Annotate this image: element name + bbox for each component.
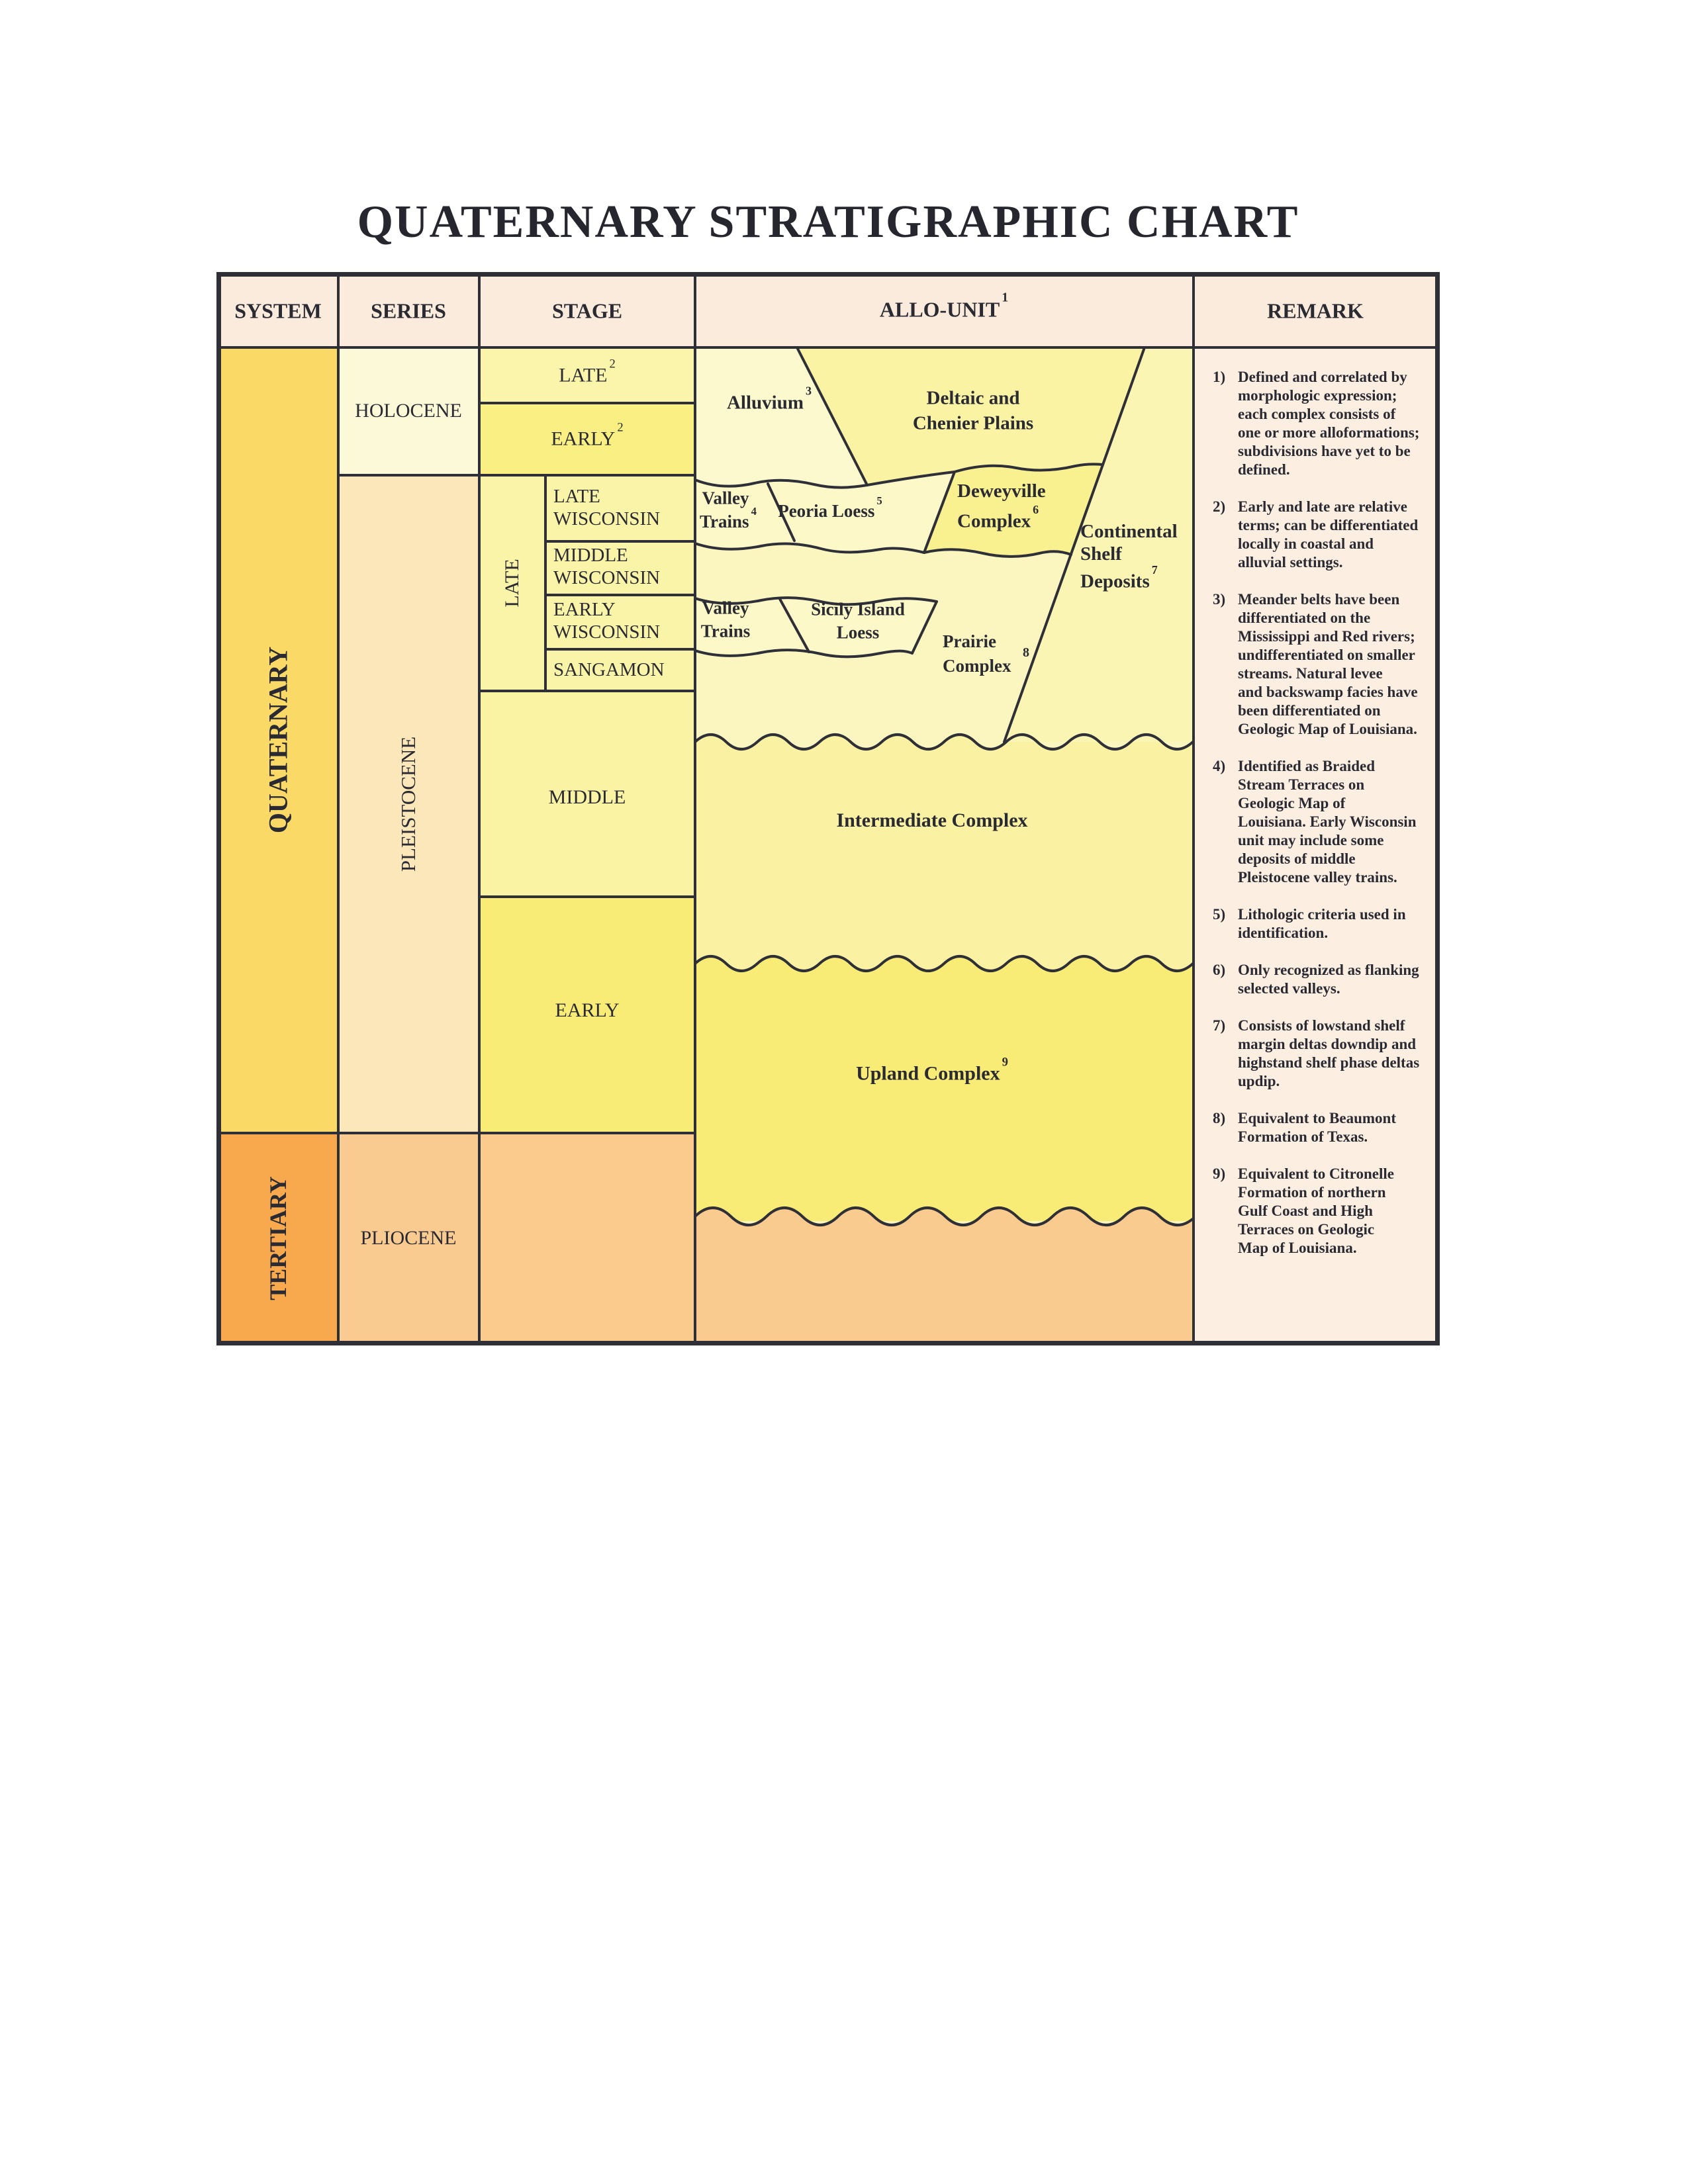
table-border-left [216, 272, 221, 1345]
stage-late-holocene-sup: 2 [610, 357, 616, 371]
allo-alluvium-sup: 3 [806, 385, 812, 398]
remark-line: differentiated on the [1213, 609, 1435, 627]
allo-upland-region [695, 956, 1194, 1221]
remark-line: been differentiated on [1213, 702, 1435, 720]
remark-line: morphologic expression; [1213, 387, 1435, 405]
stage-middle-wisconsin: MIDDLE WISCONSIN [553, 544, 660, 589]
system-quaternary-label: QUATERNARY [263, 647, 294, 833]
remark-line: Geologic Map of [1213, 794, 1435, 813]
remark-line: subdivisions have yet to be [1213, 442, 1435, 461]
allo-valley-trains-late-text: Trains [700, 512, 749, 531]
remark-line: terms; can be differentiated [1213, 516, 1435, 535]
table-border-bottom [216, 1341, 1440, 1345]
header-allo-unit-text: ALLO-UNIT [880, 298, 1000, 322]
allo-peoria-loess-label: Peoria Loess5 [778, 500, 882, 522]
allo-peoria-loess-text: Peoria Loess [778, 501, 874, 521]
remark-line: 7)Consists of lowstand shelf [1213, 1017, 1435, 1035]
allo-deweyville-line2-text: Complex [957, 511, 1031, 532]
header-allo-unit: ALLO-UNIT1 [880, 298, 1008, 322]
remark-line: selected valleys. [1213, 979, 1435, 998]
page: QUATERNARY STRATIGRAPHIC CHART [0, 0, 1688, 2184]
remark-line: 1)Defined and correlated by [1213, 368, 1435, 387]
stage-late-holocene: LATE2 [559, 364, 616, 387]
allo-pliocene-region [695, 1208, 1194, 1343]
table-border-right [1435, 272, 1440, 1345]
stage-early: EARLY [555, 999, 620, 1022]
stage-early-wisconsin-line1: EARLY [553, 598, 660, 621]
remark-text: Consists of lowstand shelf [1238, 1017, 1405, 1034]
remark-line: streams. Natural levee [1213, 664, 1435, 683]
grid-line [338, 474, 695, 477]
stage-late-holocene-text: LATE [559, 365, 607, 387]
grid-line [479, 895, 695, 898]
remark-line: Stream Terraces on [1213, 776, 1435, 794]
grid-line [218, 1132, 695, 1134]
remark-item-1: 1)Defined and correlated by morphologic … [1213, 368, 1435, 479]
allo-intermediate-region [695, 735, 1194, 970]
remark-line: one or more alloformations; [1213, 424, 1435, 442]
allo-valley-trains-early-line1: Valley [702, 598, 749, 619]
remark-line: deposits of middle [1213, 850, 1435, 868]
allo-prairie-sup: 8 [1023, 645, 1029, 660]
remark-line: Formation of northern [1213, 1183, 1435, 1202]
stage-early-holocene-text: EARLY [551, 428, 615, 450]
system-tertiary-label: TERTIARY [264, 1176, 292, 1300]
allo-sicily-island-line1: Sicily Island [811, 600, 905, 620]
allo-continental-line3-text: Deposits [1080, 571, 1150, 592]
remark-line: 6)Only recognized as flanking [1213, 961, 1435, 979]
remark-item-8: 8)Equivalent to Beaumont Formation of Te… [1213, 1109, 1435, 1146]
remark-line: Terraces on Geologic [1213, 1220, 1435, 1239]
header-allo-unit-sup: 1 [1002, 291, 1008, 305]
remark-item-4: 4)Identified as Braided Stream Terraces … [1213, 757, 1435, 887]
grid-line [544, 475, 547, 691]
remark-line: each complex consists of [1213, 405, 1435, 424]
stage-middle: MIDDLE [549, 786, 626, 809]
allo-deweyville-line2: Complex6 [957, 504, 1046, 534]
remark-text: Only recognized as flanking [1238, 962, 1419, 978]
remark-num: 2) [1213, 498, 1238, 516]
stage-middle-wisconsin-line1: MIDDLE [553, 544, 660, 567]
cell-pliocene-stage [479, 1133, 695, 1343]
allo-alluvium-text: Alluvium [727, 392, 804, 413]
remark-text: Meander belts have been [1238, 591, 1399, 608]
allo-prairie-line2: Complex [943, 654, 1011, 678]
stage-early-holocene-sup: 2 [617, 420, 623, 434]
allo-deltaic-line2: Chenier Plains [913, 413, 1033, 435]
allo-alluvium-label: Alluvium3 [727, 391, 812, 414]
allo-continental-sup: 7 [1152, 563, 1158, 576]
remark-item-5: 5)Lithologic criteria used in identifica… [1213, 905, 1435, 942]
remark-num: 1) [1213, 368, 1238, 387]
header-remark: REMARK [1267, 299, 1364, 324]
stage-middle-wisconsin-line2: WISCONSIN [553, 567, 660, 589]
remark-line: Mississippi and Red rivers; [1213, 627, 1435, 646]
remark-num: 9) [1213, 1165, 1238, 1183]
remark-line: 5)Lithologic criteria used in [1213, 905, 1435, 924]
remark-num: 4) [1213, 757, 1238, 776]
remark-line: Geologic Map of Louisiana. [1213, 720, 1435, 739]
remark-line: Map of Louisiana. [1213, 1239, 1435, 1257]
stage-late-wisconsin-line2: WISCONSIN [553, 508, 660, 530]
allo-valley-trains-late-line1: Valley [702, 488, 749, 509]
remark-text: Equivalent to Beaumont [1238, 1110, 1396, 1126]
grid-line [479, 402, 695, 404]
remark-line: defined. [1213, 461, 1435, 479]
remark-line: identification. [1213, 924, 1435, 942]
remark-line: and backswamp facies have [1213, 683, 1435, 702]
grid-line [478, 275, 481, 1343]
remark-line: alluvial settings. [1213, 553, 1435, 572]
table-border-top [216, 272, 1440, 277]
grid-line [479, 690, 695, 692]
stage-early-holocene: EARLY2 [551, 428, 623, 451]
header-system: SYSTEM [234, 299, 322, 324]
remark-line: 9)Equivalent to Citronelle [1213, 1165, 1435, 1183]
allo-intermediate-label: Intermediate Complex [836, 809, 1027, 832]
remark-line: Gulf Coast and High [1213, 1202, 1435, 1220]
remark-text: Identified as Braided [1238, 758, 1375, 774]
stage-sangamon: SANGAMON [553, 659, 665, 681]
remark-line: margin deltas downdip and [1213, 1035, 1435, 1054]
grid-line [545, 648, 695, 651]
remark-text: Equivalent to Citronelle [1238, 1165, 1394, 1182]
stage-early-wisconsin: EARLY WISCONSIN [553, 598, 660, 643]
remark-line: 2)Early and late are relative [1213, 498, 1435, 516]
grid-line [337, 275, 340, 1343]
header-stage: STAGE [552, 299, 622, 324]
allo-valley-trains-late-sup: 4 [751, 505, 757, 518]
remark-num: 8) [1213, 1109, 1238, 1128]
remark-item-6: 6)Only recognized as flanking selected v… [1213, 961, 1435, 998]
grid-line [1192, 275, 1195, 1343]
grid-line [545, 540, 695, 543]
allo-continental-line2: Shelf [1080, 543, 1178, 565]
allo-upland-label: Upland Complex9 [856, 1062, 1008, 1085]
remark-line: Pleistocene valley trains. [1213, 868, 1435, 887]
remark-line: highstand shelf phase deltas [1213, 1054, 1435, 1072]
allo-prairie-label: Prairie Complex [943, 629, 1011, 678]
remark-line: 8)Equivalent to Beaumont [1213, 1109, 1435, 1128]
remark-num: 7) [1213, 1017, 1238, 1035]
allo-upland-sup: 9 [1002, 1055, 1008, 1069]
page-title: QUATERNARY STRATIGRAPHIC CHART [218, 196, 1438, 249]
grid-line [545, 594, 695, 596]
allo-prairie-line1: Prairie [943, 629, 1011, 654]
allo-deweyville-sup: 6 [1033, 503, 1039, 516]
remark-item-3: 3)Meander belts have been differentiated… [1213, 590, 1435, 739]
allo-deltaic-line1: Deltaic and [927, 388, 1020, 410]
series-holocene-label: HOLOCENE [355, 400, 462, 422]
remark-num: 5) [1213, 905, 1238, 924]
allo-unit-diagram [695, 347, 1194, 1343]
allo-valley-trains-early-line2: Trains [701, 621, 751, 642]
remark-item-2: 2)Early and late are relative terms; can… [1213, 498, 1435, 572]
remark-text: Lithologic criteria used in [1238, 906, 1406, 923]
stage-late-wisconsin-line1: LATE [553, 485, 660, 508]
remark-line: 4)Identified as Braided [1213, 757, 1435, 776]
stage-late-wisconsin: LATE WISCONSIN [553, 485, 660, 530]
allo-upland-text: Upland Complex [856, 1063, 1000, 1085]
allo-deweyville-label: Deweyville Complex6 [957, 478, 1046, 534]
remark-line: Formation of Texas. [1213, 1128, 1435, 1146]
series-pleistocene-label: PLEISTOCENE [397, 737, 420, 872]
header-series: SERIES [371, 299, 446, 324]
remark-line: 3)Meander belts have been [1213, 590, 1435, 609]
allo-continental-line3: Deposits7 [1080, 565, 1178, 593]
allo-deweyville-line1: Deweyville [957, 478, 1046, 504]
remark-list: 1)Defined and correlated by morphologic … [1213, 368, 1435, 1276]
stage-early-wisconsin-line2: WISCONSIN [553, 621, 660, 643]
grid-line [694, 275, 696, 1343]
allo-peoria-loess-sup: 5 [876, 494, 882, 507]
remark-text: Early and late are relative [1238, 498, 1407, 515]
remark-line: updip. [1213, 1072, 1435, 1091]
remark-line: unit may include some [1213, 831, 1435, 850]
series-pliocene-label: PLIOCENE [361, 1227, 457, 1250]
allo-continental-shelf-label: Continental Shelf Deposits7 [1080, 520, 1178, 593]
allo-sicily-island-line2: Loess [837, 623, 880, 643]
stage-late-group-label: LATE [501, 559, 524, 607]
allo-valley-trains-late-line2: Trains4 [700, 511, 757, 532]
remark-line: undifferentiated on smaller [1213, 646, 1435, 664]
remark-num: 6) [1213, 961, 1238, 979]
remark-line: locally in coastal and [1213, 535, 1435, 553]
remark-item-9: 9)Equivalent to Citronelle Formation of … [1213, 1165, 1435, 1257]
remark-item-7: 7)Consists of lowstand shelf margin delt… [1213, 1017, 1435, 1091]
grid-line [218, 346, 1438, 349]
remark-line: Louisiana. Early Wisconsin [1213, 813, 1435, 831]
remark-text: Defined and correlated by [1238, 369, 1407, 385]
remark-num: 3) [1213, 590, 1238, 609]
allo-continental-line1: Continental [1080, 520, 1178, 543]
